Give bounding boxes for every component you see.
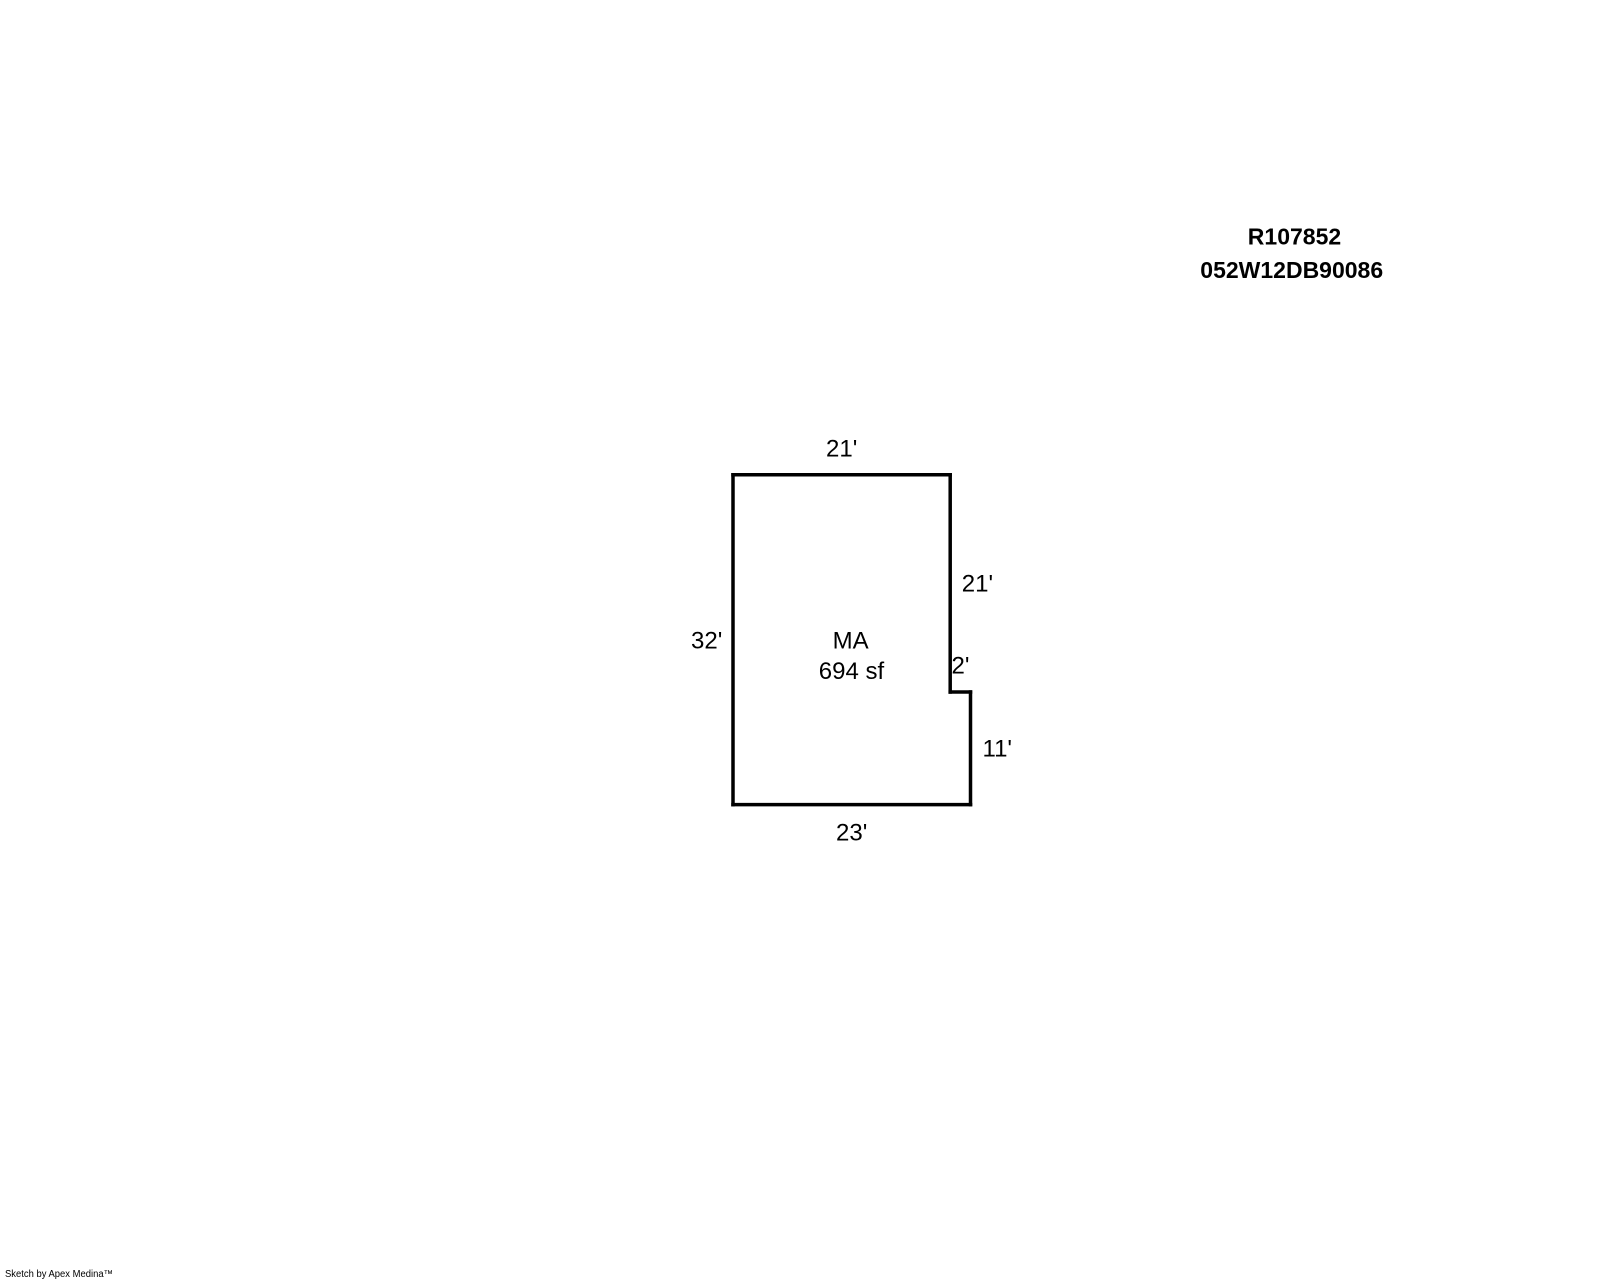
svg-text:23': 23' (836, 820, 867, 847)
svg-text:21': 21' (962, 571, 993, 598)
svg-text:2': 2' (952, 653, 970, 680)
svg-text:R107852: R107852 (1248, 224, 1341, 250)
svg-text:32': 32' (691, 628, 722, 655)
svg-text:MA: MA (833, 628, 869, 655)
svg-text:11': 11' (983, 736, 1013, 763)
svg-text:21': 21' (826, 436, 857, 463)
svg-text:694 sf: 694 sf (819, 658, 885, 685)
svg-text:Sketch by Apex Medina™: Sketch by Apex Medina™ (5, 1269, 113, 1280)
svg-text:052W12DB90086: 052W12DB90086 (1200, 257, 1383, 283)
